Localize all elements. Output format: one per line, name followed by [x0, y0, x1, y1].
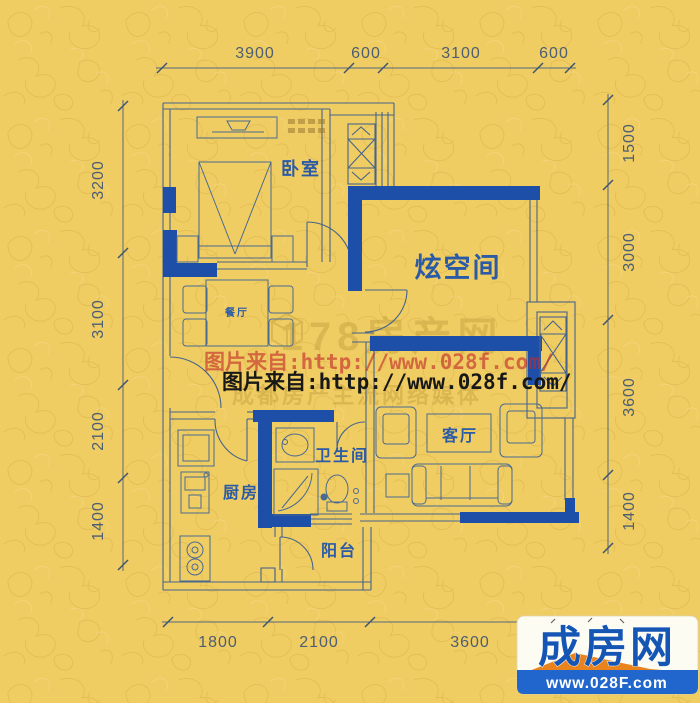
dim-right-1: 1500 — [621, 123, 638, 163]
dim-top-4: 600 — [539, 45, 569, 62]
dim-right-2: 3000 — [621, 232, 638, 272]
dim-top-2: 600 — [351, 45, 381, 62]
room-label-kitchen: 厨房 — [223, 483, 259, 502]
room-label-bathroom: 卫生间 — [315, 446, 369, 465]
room-label-dining: 餐厅 — [224, 306, 249, 319]
dim-left-4: 1400 — [90, 501, 107, 541]
logo-brand: 成房网 — [538, 624, 676, 672]
room-label-balcony: 阳台 — [321, 541, 357, 560]
dim-right-4: 1400 — [621, 491, 638, 531]
logo-website: www.028F.com — [545, 675, 668, 692]
dim-left-1: 3200 — [90, 160, 107, 200]
dim-bottom-3: 3600 — [450, 634, 490, 651]
dim-right-3: 3600 — [621, 377, 638, 417]
floorplan-image: 178房产网 成都房产主流网络媒体 3900 600 3100 600 3200… — [0, 0, 700, 703]
room-label-bedroom: 卧室 — [281, 158, 321, 179]
dim-top-3: 3100 — [441, 45, 481, 62]
room-label-flex-space: 炫空间 — [415, 252, 502, 283]
dim-bottom-2: 2100 — [299, 634, 339, 651]
watermark-source-black: 图片来自:http://www.028f.com/ — [222, 370, 572, 394]
room-label-living-room: 客厅 — [442, 426, 478, 445]
site-logo: 成房网 www.028F.com — [517, 616, 698, 694]
dim-left-3: 2100 — [90, 411, 107, 451]
dim-top-1: 3900 — [235, 45, 275, 62]
dim-left-2: 3100 — [90, 299, 107, 339]
dim-bottom-1: 1800 — [198, 634, 238, 651]
